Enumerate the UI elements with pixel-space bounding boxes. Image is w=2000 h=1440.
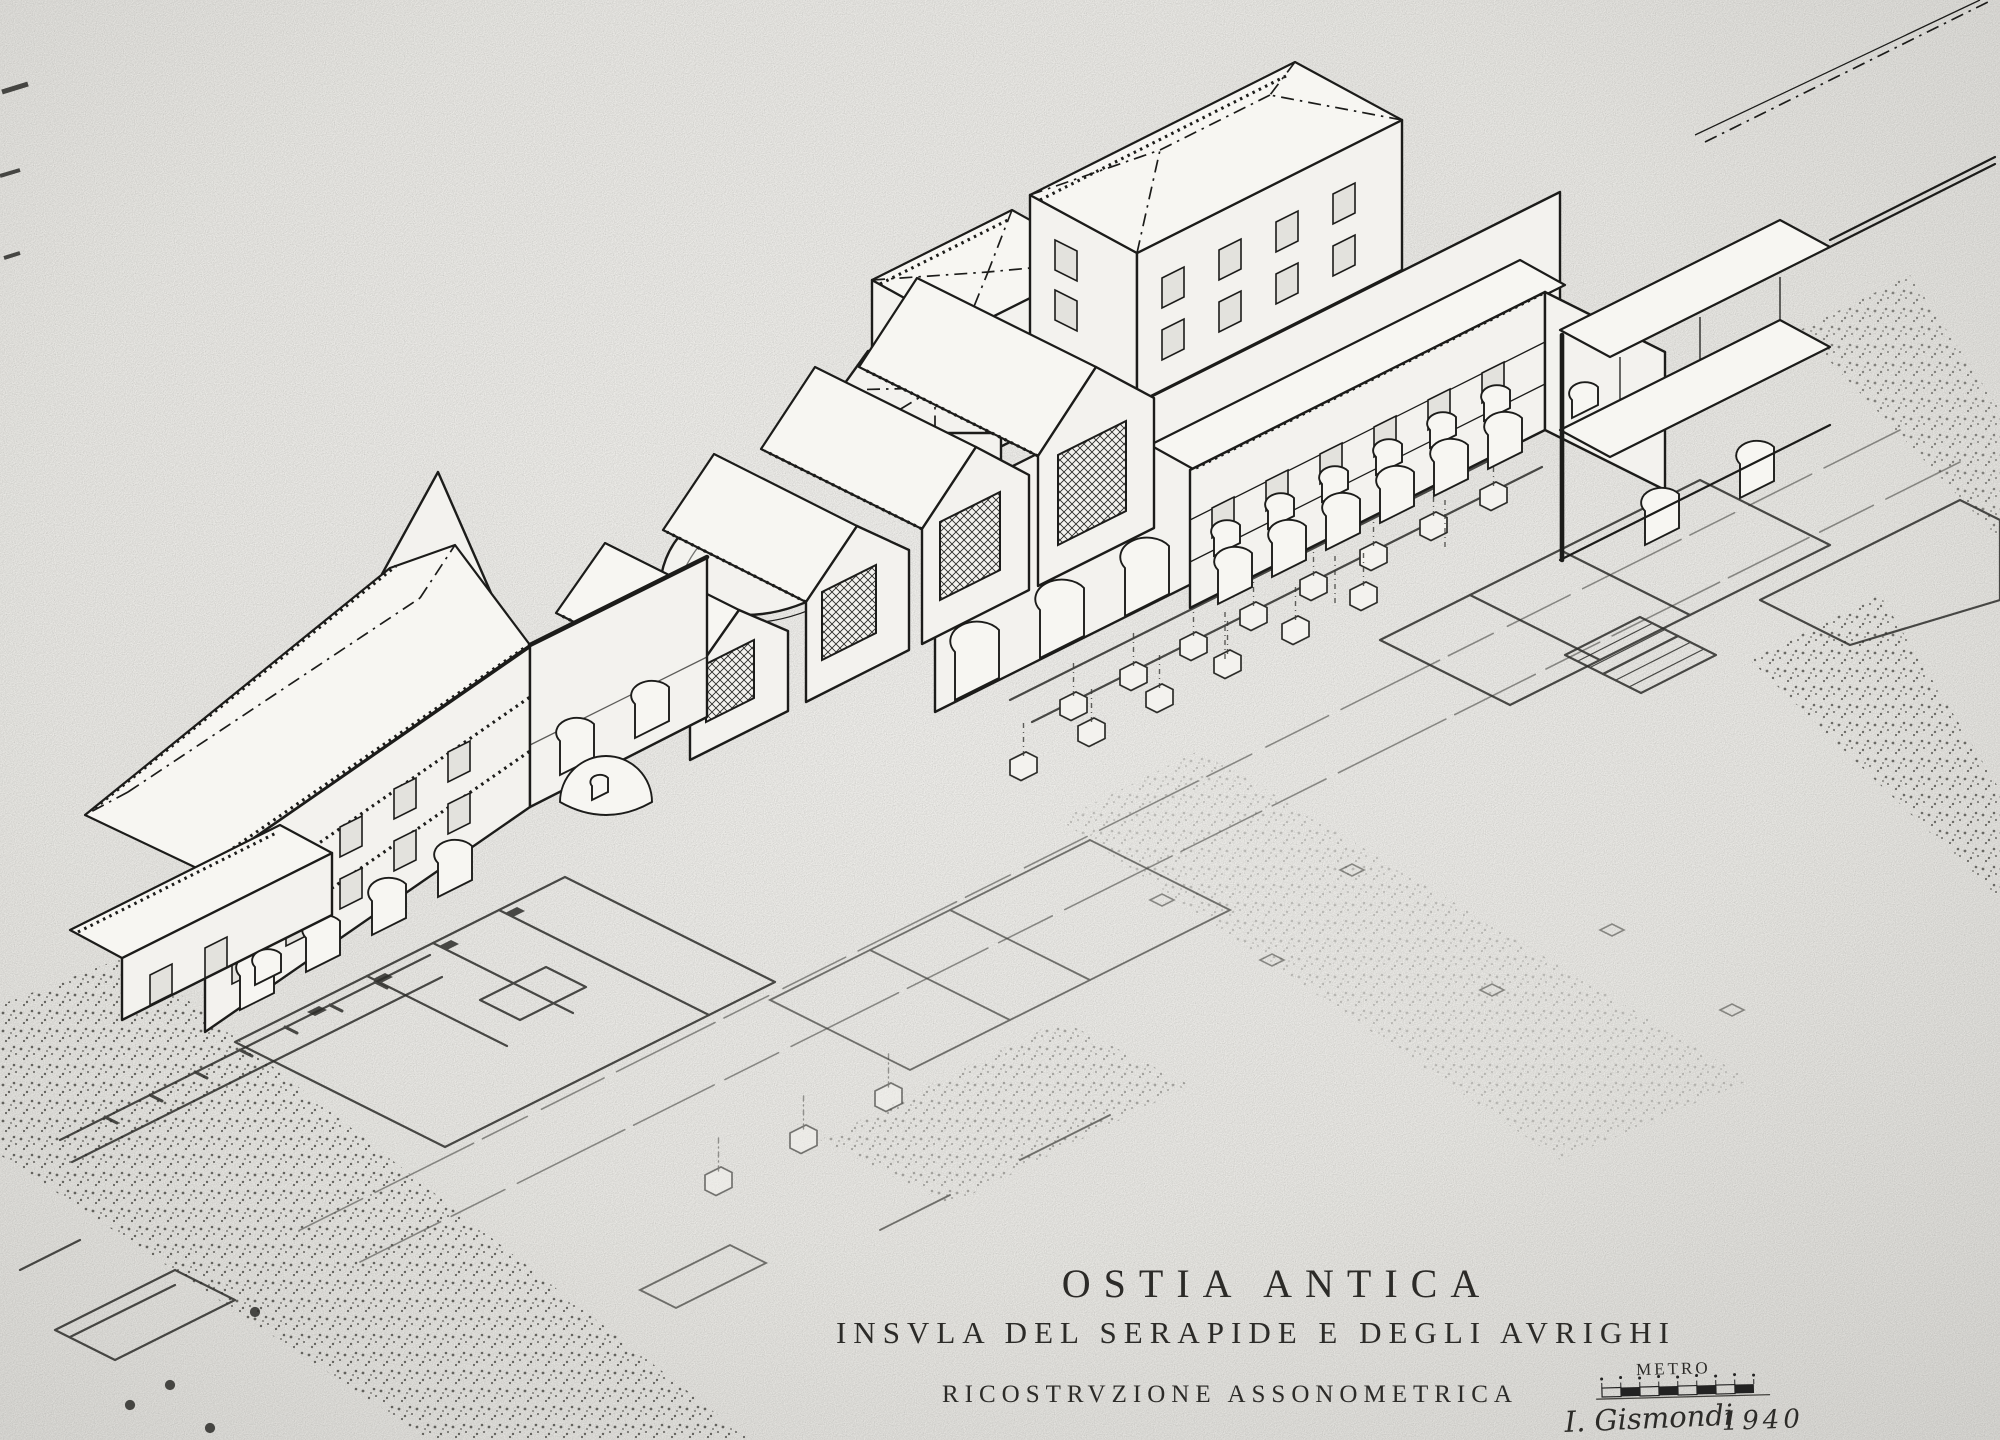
scale-label: METRO [1636,1358,1711,1379]
axonometric-drawing: OSTIA ANTICA INSVLA DEL SERAPIDE E DEGLI… [0,0,2000,1440]
drawing-caption: RICOSTRVZIONE ASSONOMETRICA [942,1381,1518,1408]
drawing-title: OSTIA ANTICA [1062,1261,1492,1306]
drawing-year: 1940 [1721,1404,1804,1437]
scanned-drawing-page: OSTIA ANTICA INSVLA DEL SERAPIDE E DEGLI… [0,0,2000,1440]
drawing-subtitle: INSVLA DEL SERAPIDE E DEGLI AVRIGHI [836,1315,1676,1350]
